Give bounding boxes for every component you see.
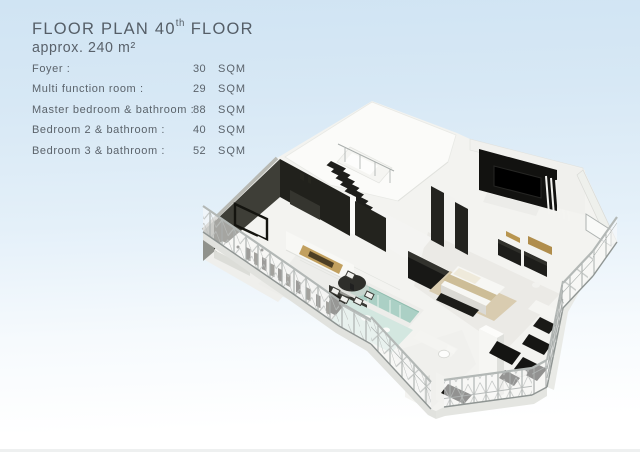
toilet [439, 350, 450, 358]
page-background: FLOOR PLAN 40th FLOOR approx. 240 m² Foy… [0, 0, 640, 452]
floor-plan-3d-render [0, 0, 640, 452]
floor-plan-svg [0, 0, 640, 452]
